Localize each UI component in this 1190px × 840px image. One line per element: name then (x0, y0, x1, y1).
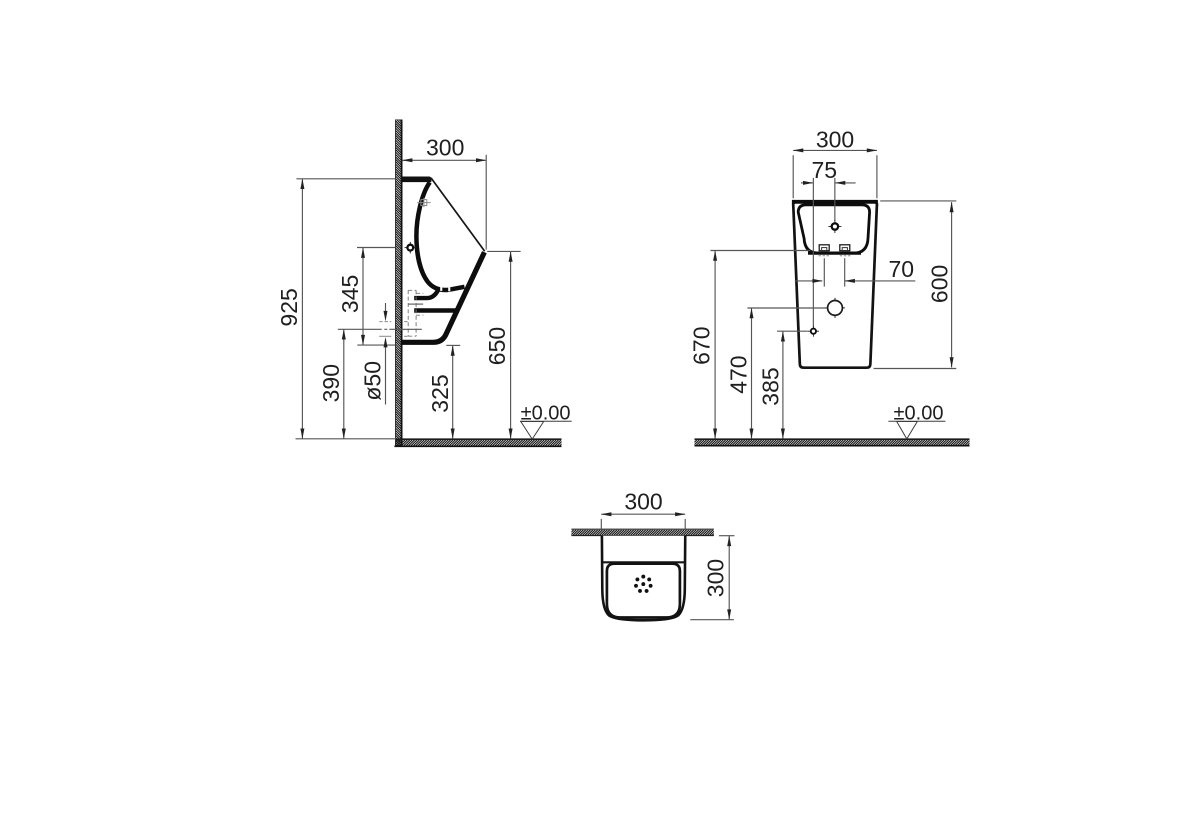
svg-text:325: 325 (427, 374, 453, 412)
svg-text:300: 300 (624, 489, 662, 515)
svg-text:ø50: ø50 (360, 361, 386, 401)
svg-text:75: 75 (812, 157, 838, 183)
svg-text:300: 300 (816, 127, 854, 153)
svg-text:670: 670 (689, 327, 715, 365)
svg-text:390: 390 (318, 364, 344, 402)
svg-text:385: 385 (757, 367, 783, 405)
svg-text:70: 70 (889, 256, 915, 282)
svg-text:600: 600 (926, 265, 952, 303)
svg-text:345: 345 (337, 275, 363, 313)
svg-text:300: 300 (703, 559, 729, 597)
svg-text:925: 925 (276, 288, 302, 326)
svg-text:470: 470 (726, 355, 752, 393)
svg-text:650: 650 (484, 327, 510, 365)
svg-text:300: 300 (426, 134, 464, 160)
